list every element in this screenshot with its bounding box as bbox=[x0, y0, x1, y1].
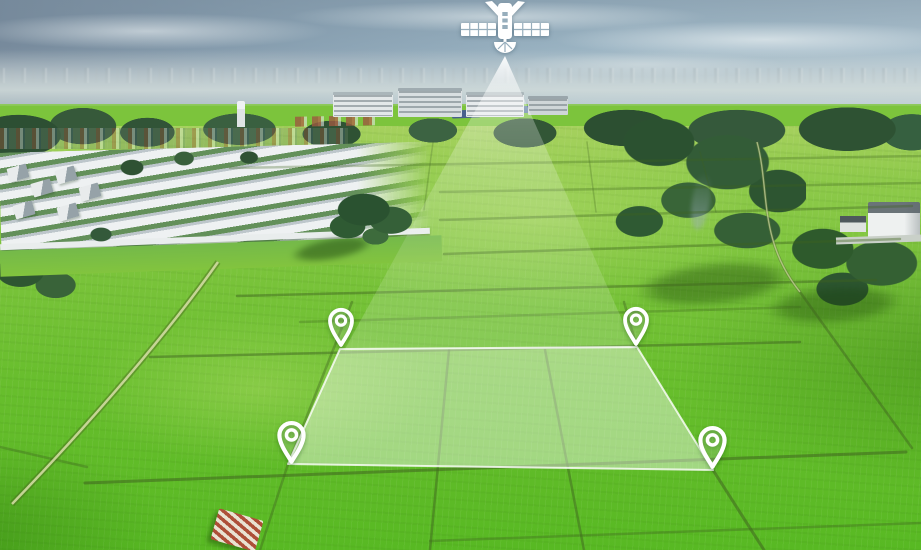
map-pin-top-left bbox=[326, 307, 356, 347]
location-pin-icon bbox=[696, 425, 729, 469]
satellite-icon bbox=[460, 0, 550, 60]
satellite-beam bbox=[345, 56, 635, 349]
aerial-land-survey-photo bbox=[0, 0, 921, 550]
location-pin-icon bbox=[326, 307, 356, 347]
location-pin-icon bbox=[275, 420, 308, 464]
location-pin-icon bbox=[621, 306, 651, 346]
satellite-svg bbox=[460, 0, 550, 60]
map-pin-bottom-right bbox=[696, 425, 729, 469]
parcel-highlight bbox=[288, 347, 713, 470]
survey-overlay bbox=[0, 0, 921, 550]
map-pin-top-right bbox=[621, 306, 651, 346]
map-pin-bottom-left bbox=[275, 420, 308, 464]
